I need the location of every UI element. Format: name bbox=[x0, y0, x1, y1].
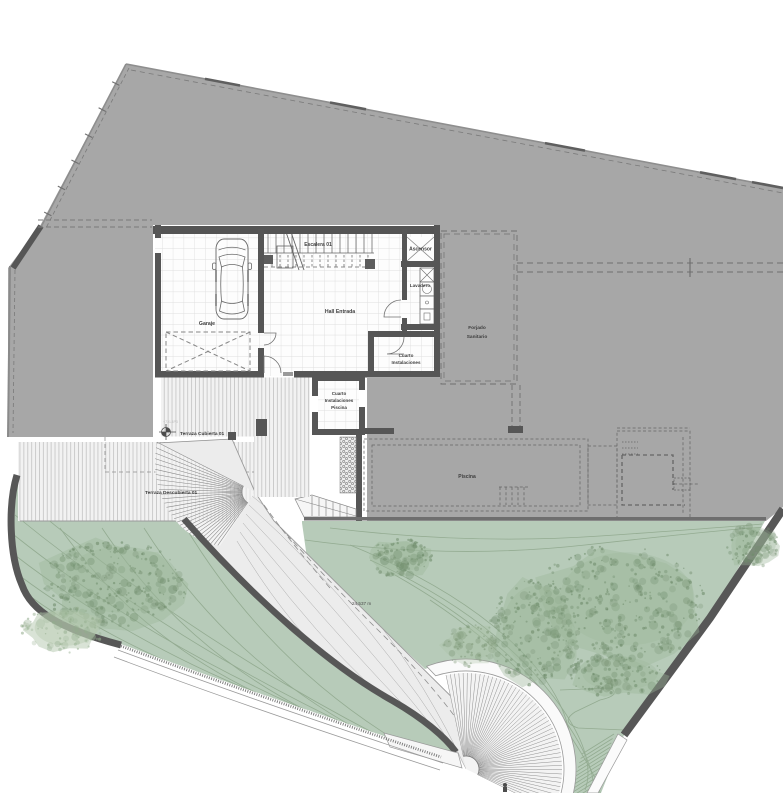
svg-text:Instalaciones: Instalaciones bbox=[325, 398, 354, 403]
svg-text:Lavadero: Lavadero bbox=[410, 283, 431, 288]
svg-text:Garaje: Garaje bbox=[199, 321, 215, 327]
svg-text:Piscina: Piscina bbox=[458, 474, 476, 480]
svg-text:Forjado: Forjado bbox=[468, 325, 486, 331]
svg-text:Hall Entrada: Hall Entrada bbox=[325, 309, 355, 315]
svg-text:Terraza Descubierta 01: Terraza Descubierta 01 bbox=[145, 490, 198, 496]
svg-text:+7XL4P3: +7XL4P3 bbox=[163, 420, 178, 424]
svg-text:Terraza Cubierta 01: Terraza Cubierta 01 bbox=[180, 431, 224, 437]
svg-text:Sanitario: Sanitario bbox=[467, 334, 488, 340]
svg-text:Escalera 01: Escalera 01 bbox=[304, 242, 332, 248]
svg-text:Cuarto: Cuarto bbox=[332, 391, 347, 396]
svg-text:24,537 m: 24,537 m bbox=[352, 601, 371, 606]
svg-text:Instalaciones: Instalaciones bbox=[391, 360, 421, 365]
svg-text:Ascensor: Ascensor bbox=[409, 247, 432, 253]
svg-text:Piscina: Piscina bbox=[331, 405, 347, 410]
